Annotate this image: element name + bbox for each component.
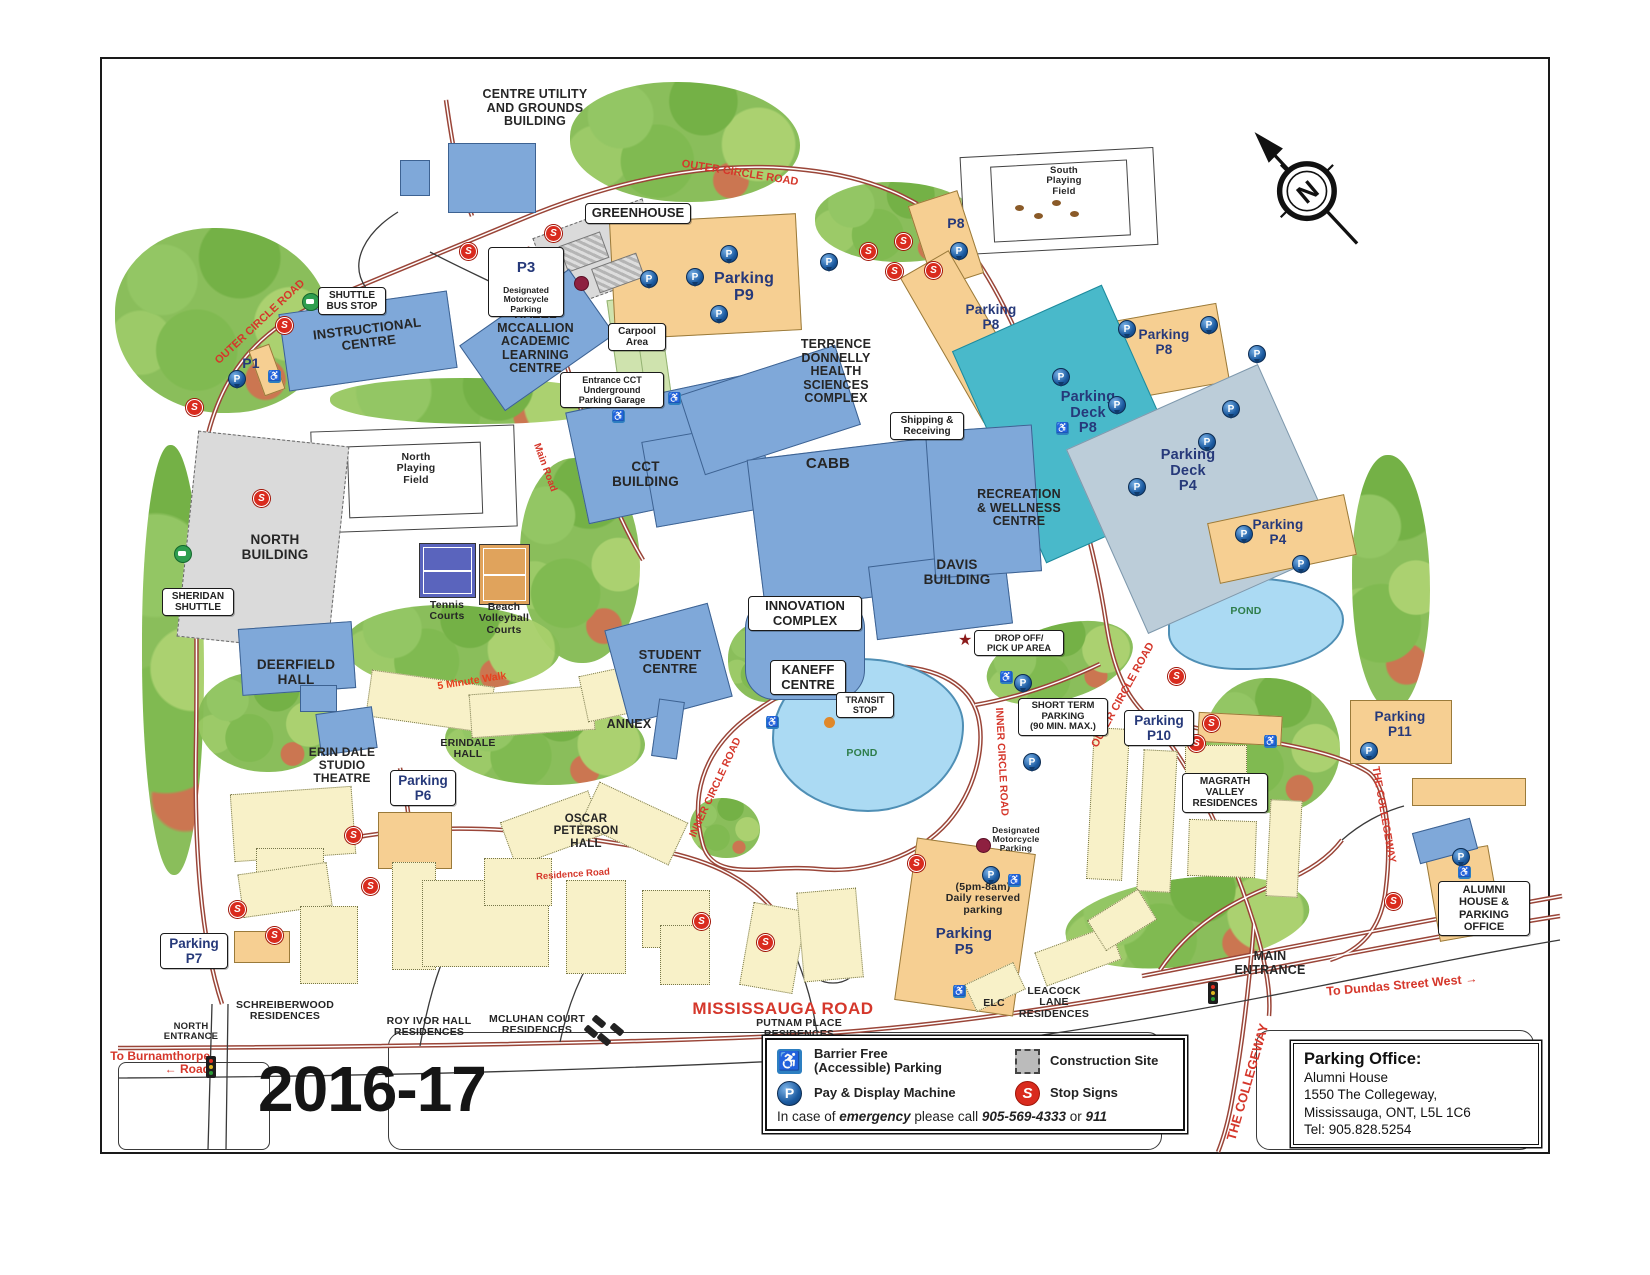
- pay-display-icon: P: [777, 1081, 802, 1106]
- box-short-term: SHORT TERM PARKING (90 MIN. MAX.): [1018, 698, 1108, 736]
- residence-schreiberwood: [300, 906, 358, 984]
- pay-display-icon: P: [820, 253, 838, 271]
- box-sheridan-shuttle: SHERIDAN SHUTTLE: [162, 588, 234, 616]
- stop-sign-icon: S: [362, 878, 379, 895]
- pay-display-icon: P: [1200, 316, 1218, 334]
- emergency-word: emergency: [839, 1109, 910, 1124]
- tennis-courts: [419, 543, 476, 598]
- stop-sign-icon: S: [908, 855, 925, 872]
- pay-display-icon: P: [1452, 848, 1470, 866]
- label-north-building: NORTH BUILDING: [226, 533, 324, 562]
- accessible-parking-icon: ♿: [1056, 422, 1069, 435]
- emergency-phone: 905-569-4333: [982, 1109, 1066, 1124]
- pay-display-icon: P: [1023, 753, 1041, 771]
- transit-stop-dot: [824, 717, 835, 728]
- pay-display-icon: P: [1014, 674, 1032, 692]
- label-leacock: LEACOCK LANE RESIDENCES: [1018, 986, 1090, 1020]
- accessible-parking-icon: ♿: [668, 392, 681, 405]
- pay-display-icon: P: [1118, 320, 1136, 338]
- box-innovation: INNOVATION COMPLEX: [748, 596, 862, 631]
- pay-display-icon: P: [982, 866, 1000, 884]
- label-beach: Beach Volleyball Courts: [458, 602, 550, 636]
- horse: [1015, 205, 1024, 211]
- parking-label-p8-small: P8: [938, 216, 974, 231]
- parking-label-deck-p4: Parking Deck P4: [1148, 448, 1228, 495]
- parking-lot-p6: [378, 812, 452, 869]
- label-student-centre: STUDENT CENTRE: [628, 648, 712, 676]
- horse: [1070, 211, 1079, 217]
- label-pond: POND: [838, 748, 886, 759]
- stop-sign-icon: S: [925, 262, 942, 279]
- residence-magrath: [1187, 819, 1257, 878]
- pay-display-icon: P: [1052, 368, 1070, 386]
- residence-putnam: [796, 888, 864, 983]
- residence-erindale-hall: [469, 686, 596, 739]
- legend-pay-display: Pay & Display Machine: [814, 1086, 1010, 1100]
- label-donnelly: TERRENCE DONNELLY HEALTH SCIENCES COMPLE…: [790, 338, 882, 406]
- road-label-to-burnamthorpe: To Burnamthorpe ← Road: [110, 1050, 210, 1076]
- traffic-light-icon: [1208, 982, 1218, 1004]
- label-south-field: South Playing Field: [1030, 166, 1098, 197]
- stop-sign-icon: S: [545, 225, 562, 242]
- parking-label-p8-mid: Parking P8: [955, 303, 1027, 332]
- label-p5-reserved: (5pm-8am) Daily reserved parking: [936, 882, 1030, 916]
- label-cabb: CABB: [797, 456, 859, 472]
- horse: [1052, 200, 1061, 206]
- stop-sign-icon: S: [1203, 715, 1220, 732]
- legend-barrier-free: Barrier Free (Accessible) Parking: [814, 1047, 1010, 1076]
- residence-mcluhan: [566, 880, 626, 974]
- pay-display-icon: P: [950, 242, 968, 260]
- parking-office-line: Alumni House: [1304, 1069, 1528, 1086]
- stop-sign-icon: S: [1015, 1081, 1040, 1106]
- legend-stop-signs: Stop Signs: [1050, 1086, 1173, 1100]
- label-p3-sub: Designated Motorcycle Parking: [503, 285, 549, 314]
- box-p3: P3 Designated Motorcycle Parking: [488, 247, 564, 317]
- emergency-text: In case of: [777, 1109, 839, 1124]
- pay-display-icon: P: [1108, 396, 1126, 414]
- legend: ♿ Barrier Free (Accessible) Parking Cons…: [765, 1038, 1185, 1131]
- legend-construction: Construction Site: [1050, 1054, 1173, 1068]
- parking-office-box: Parking Office: Alumni House 1550 The Co…: [1293, 1043, 1539, 1145]
- stop-sign-icon: S: [1385, 893, 1402, 910]
- label-erindale-hall: ERINDALE HALL: [436, 738, 500, 761]
- building-centre-utility: [448, 143, 536, 213]
- box-parking-p10: Parking P10: [1124, 710, 1194, 746]
- stop-sign-icon: S: [229, 901, 246, 918]
- parking-label-p3: P3: [493, 260, 559, 277]
- box-parking-p7: Parking P7: [160, 933, 228, 969]
- stop-sign-icon: S: [693, 913, 710, 930]
- label-main-entrance: MAIN ENTRANCE: [1228, 950, 1312, 977]
- box-transit-stop: TRANSIT STOP: [836, 692, 894, 718]
- pay-display-icon: P: [1128, 478, 1146, 496]
- label-deerfield: DEERFIELD HALL: [244, 658, 348, 687]
- label-pond: POND: [1222, 606, 1270, 617]
- stop-sign-icon: S: [460, 243, 477, 260]
- stop-sign-icon: S: [1168, 668, 1185, 685]
- stop-sign-icon: S: [276, 317, 293, 334]
- emergency-911: 911: [1085, 1109, 1107, 1124]
- pay-display-icon: P: [1222, 400, 1240, 418]
- pay-display-icon: P: [720, 245, 738, 263]
- stop-sign-icon: S: [757, 934, 774, 951]
- label-oscar: OSCAR PETERSON HALL: [542, 813, 630, 850]
- parking-label-p11: Parking P11: [1362, 710, 1438, 739]
- pay-display-icon: P: [1198, 433, 1216, 451]
- accessible-parking-icon: ♿: [1000, 671, 1013, 684]
- box-shuttle-bus-stop: SHUTTLE BUS STOP: [318, 287, 386, 315]
- legend-emergency: In case of emergency please call 905-569…: [777, 1109, 1173, 1124]
- accessible-parking-icon: ♿: [612, 410, 625, 423]
- parking-office-line: Tel: 905.828.5254: [1304, 1121, 1528, 1138]
- label-mcluhan: MCLUHAN COURT RESIDENCES: [488, 1014, 586, 1037]
- accessible-parking-icon: ♿: [1008, 874, 1021, 887]
- label-annex: ANNEX: [598, 718, 660, 732]
- construction-site-icon: [1015, 1049, 1040, 1074]
- pay-display-icon: P: [228, 370, 246, 388]
- pay-display-icon: P: [1360, 742, 1378, 760]
- motorcycle-parking-icon: [976, 838, 991, 853]
- box-magrath: MAGRATH VALLEY RESIDENCES: [1182, 773, 1268, 813]
- stop-sign-icon: S: [860, 243, 877, 260]
- parking-office-title: Parking Office:: [1304, 1050, 1528, 1069]
- residence: [660, 925, 710, 985]
- stop-sign-icon: S: [895, 233, 912, 250]
- stop-sign-icon: S: [266, 927, 283, 944]
- horse: [1034, 213, 1043, 219]
- pay-display-icon: P: [686, 268, 704, 286]
- accessible-parking-icon: ♿: [953, 985, 966, 998]
- year-title: 2016-17: [258, 1052, 486, 1126]
- beach-volleyball-courts: [479, 544, 530, 605]
- pay-display-icon: P: [640, 270, 658, 288]
- road-label-mississauga: MISSISSAUGA ROAD: [688, 1000, 878, 1019]
- label-erindale-studio: ERIN DALE STUDIO THEATRE: [303, 746, 381, 785]
- box-cct-garage: Entrance CCT Underground Parking Garage: [560, 372, 664, 408]
- label-roy-ivor: ROY IVOR HALL RESIDENCES: [383, 1016, 475, 1039]
- box-drop-off: DROP OFF/ PICK UP AREA: [974, 630, 1064, 656]
- compass-icon: N: [1248, 130, 1368, 250]
- stop-sign-icon: S: [345, 827, 362, 844]
- label-recreation: RECREATION & WELLNESS CENTRE: [963, 488, 1075, 529]
- box-greenhouse: GREENHOUSE: [585, 203, 691, 224]
- stop-sign-icon: S: [886, 263, 903, 280]
- parking-lot-p11: [1412, 778, 1526, 806]
- emergency-text: or: [1066, 1109, 1086, 1124]
- pay-display-icon: P: [1248, 345, 1266, 363]
- campus-map: CENTRE UTILITY AND GROUNDS BUILDING INST…: [0, 0, 1650, 1275]
- box-carpool: Carpool Area: [608, 323, 666, 351]
- stop-sign-icon: S: [186, 399, 203, 416]
- pay-display-icon: P: [1292, 555, 1310, 573]
- parking-office-line: Mississauga, ONT, L5L 1C6: [1304, 1104, 1528, 1121]
- box-shipping: Shipping & Receiving: [890, 412, 964, 440]
- label-north-field: North Playing Field: [380, 452, 452, 486]
- parking-label-p1: P1: [236, 356, 266, 371]
- parking-label-p9: Parking P9: [698, 270, 790, 305]
- building-centre-utility: [400, 160, 430, 196]
- label-centre-utility: CENTRE UTILITY AND GROUNDS BUILDING: [470, 88, 600, 129]
- motorcycle-parking-icon: [574, 276, 589, 291]
- building-erindale-studio: [300, 685, 337, 712]
- label-hazel: HAZEL MCCALLION ACADEMIC LEARNING CENTRE: [488, 308, 583, 376]
- drop-off-star-icon: ★: [958, 633, 972, 649]
- pay-display-icon: P: [1235, 525, 1253, 543]
- label-davis: DAVIS BUILDING: [915, 558, 999, 587]
- stop-sign-icon: S: [253, 490, 270, 507]
- accessible-parking-icon: ♿: [1264, 735, 1277, 748]
- label-cct: CCT BUILDING: [603, 460, 688, 489]
- label-p5-motorcycle: Designated Motorcycle Parking: [986, 826, 1046, 854]
- label-north-entrance: NORTH ENTRANCE: [158, 1022, 224, 1043]
- accessible-parking-icon: ♿: [1458, 866, 1471, 879]
- accessible-parking-icon: ♿: [268, 370, 281, 383]
- parking-office-line: 1550 The Collegeway,: [1304, 1086, 1528, 1103]
- box-alumni-house: ALUMNI HOUSE & PARKING OFFICE: [1438, 881, 1530, 936]
- label-elc: ELC: [976, 998, 1012, 1009]
- box-parking-p6: Parking P6: [390, 770, 456, 806]
- label-schreiberwood: SCHREIBERWOOD RESIDENCES: [230, 1000, 340, 1023]
- pay-display-icon: P: [710, 305, 728, 323]
- box-kaneff: KANEFF CENTRE: [770, 660, 846, 695]
- accessible-parking-icon: ♿: [766, 716, 779, 729]
- traffic-light-icon: [206, 1056, 216, 1078]
- parking-label-p8-east: Parking P8: [1128, 328, 1200, 357]
- parking-label-p5: Parking P5: [928, 926, 1000, 958]
- emergency-text: please call: [911, 1109, 982, 1124]
- shuttle-stop-icon: [174, 545, 192, 563]
- residence-magrath: [1265, 799, 1302, 898]
- accessible-parking-icon: ♿: [777, 1049, 802, 1074]
